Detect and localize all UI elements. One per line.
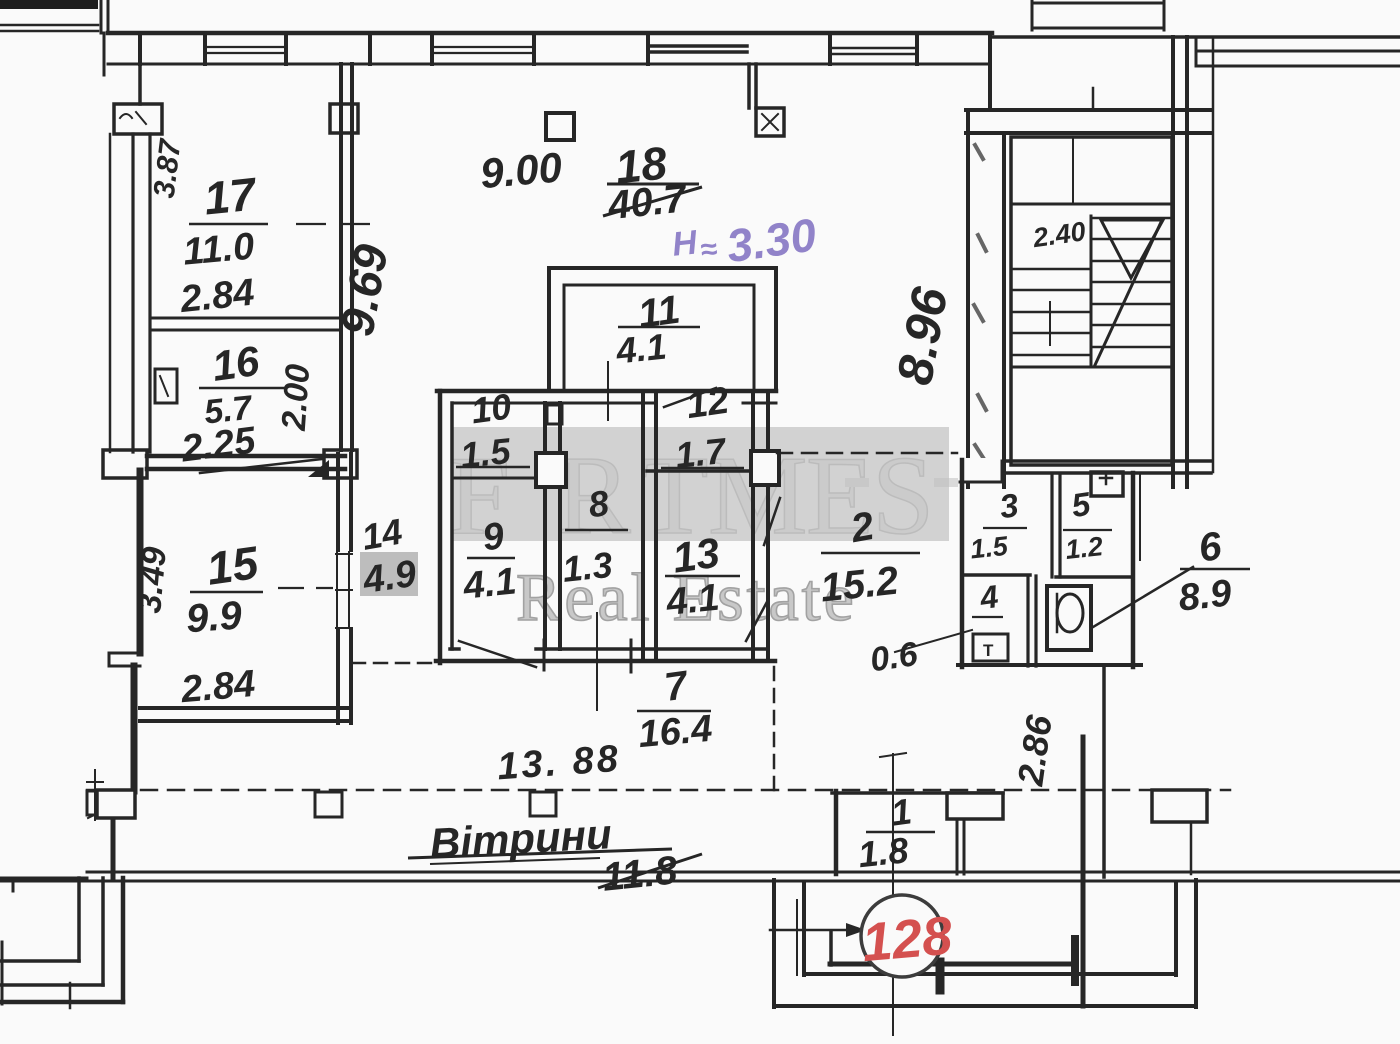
svg-text:1.5: 1.5 — [969, 531, 1010, 565]
svg-text:16: 16 — [209, 337, 262, 390]
svg-text:14: 14 — [359, 510, 406, 557]
svg-text:4.1: 4.1 — [613, 325, 668, 371]
svg-text:15.2: 15.2 — [818, 559, 900, 611]
svg-text:2.00: 2.00 — [275, 363, 318, 433]
svg-text:128: 128 — [860, 906, 955, 974]
svg-text:3.49: 3.49 — [130, 545, 174, 614]
svg-text:1.8: 1.8 — [856, 829, 910, 875]
svg-text:0.6: 0.6 — [868, 635, 921, 679]
svg-text:1.5: 1.5 — [458, 430, 513, 476]
svg-text:9.9: 9.9 — [185, 593, 244, 641]
svg-text:9.00: 9.00 — [478, 143, 564, 197]
svg-text:2.84: 2.84 — [179, 663, 257, 711]
svg-text:16.4: 16.4 — [637, 708, 714, 756]
svg-text:10: 10 — [468, 385, 513, 431]
svg-text:1.3: 1.3 — [560, 544, 614, 590]
svg-text:13: 13 — [670, 529, 723, 582]
svg-text:2.84: 2.84 — [177, 272, 256, 322]
svg-text:12: 12 — [684, 380, 732, 427]
svg-text:4.1: 4.1 — [663, 577, 721, 624]
svg-text:11.0: 11.0 — [181, 226, 256, 274]
svg-text:13. 88: 13. 88 — [496, 738, 622, 789]
svg-text:8.9: 8.9 — [1177, 572, 1234, 619]
svg-text:1.2: 1.2 — [1064, 531, 1104, 565]
svg-text:15: 15 — [203, 536, 262, 595]
svg-text:T: T — [983, 641, 994, 660]
svg-text:17: 17 — [202, 167, 261, 224]
svg-text:4.1: 4.1 — [460, 560, 518, 607]
svg-text:4.9: 4.9 — [360, 553, 419, 602]
